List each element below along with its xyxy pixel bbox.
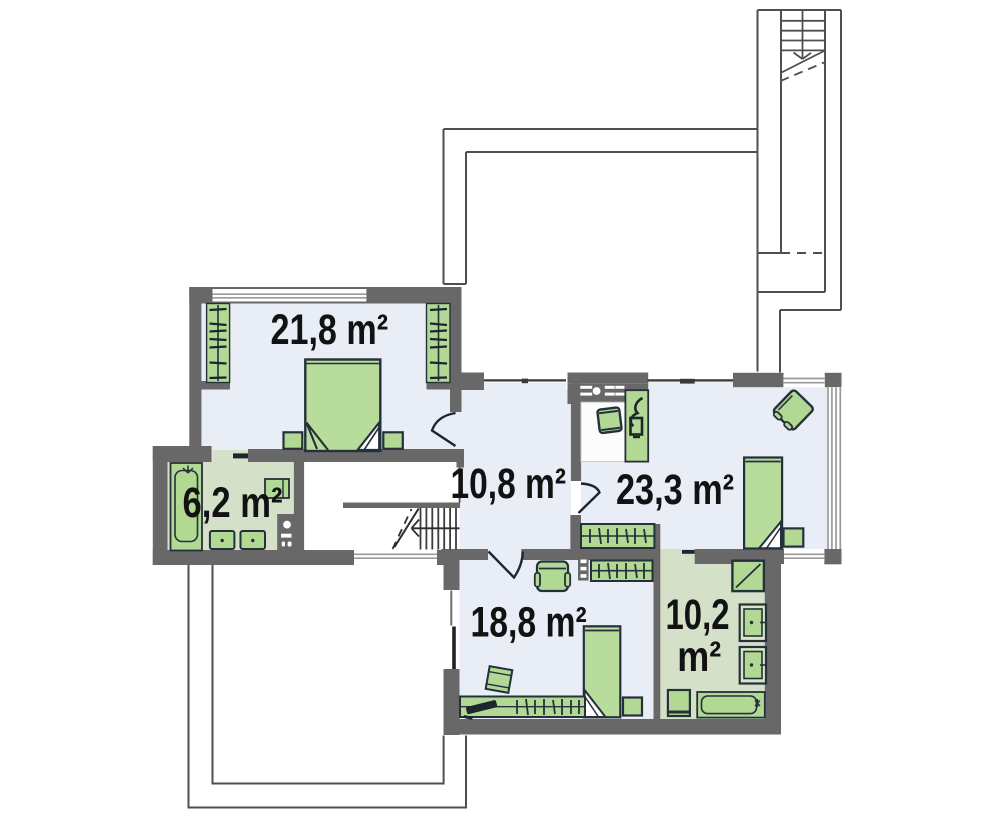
svg-text:10,2: 10,2 [666,591,730,639]
svg-text:21,8 m²: 21,8 m² [271,306,389,354]
svg-text:6,2 m²: 6,2 m² [183,479,283,527]
svg-text:10,8 m²: 10,8 m² [451,460,567,508]
svg-text:18,8 m²: 18,8 m² [471,598,587,646]
svg-text:23,3 m²: 23,3 m² [616,466,734,514]
svg-text:m²: m² [677,633,721,681]
